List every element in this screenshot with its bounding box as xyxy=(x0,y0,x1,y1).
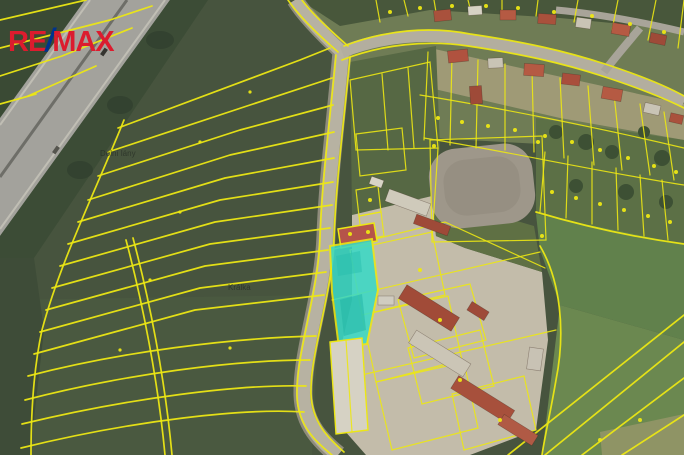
field-label-dolni-lany: Dolní lány xyxy=(100,149,136,158)
remax-logo: RE/MAX xyxy=(8,24,114,57)
aerial-cadastral-map: Dolní lány Králka xyxy=(0,0,684,455)
field-label-kralka: Králka xyxy=(228,283,251,292)
remax-logo-max: MAX xyxy=(52,26,113,58)
remax-logo-re: RE xyxy=(8,26,46,58)
map-screenshot: Dolní lány Králka RE/MAX xyxy=(0,0,684,455)
